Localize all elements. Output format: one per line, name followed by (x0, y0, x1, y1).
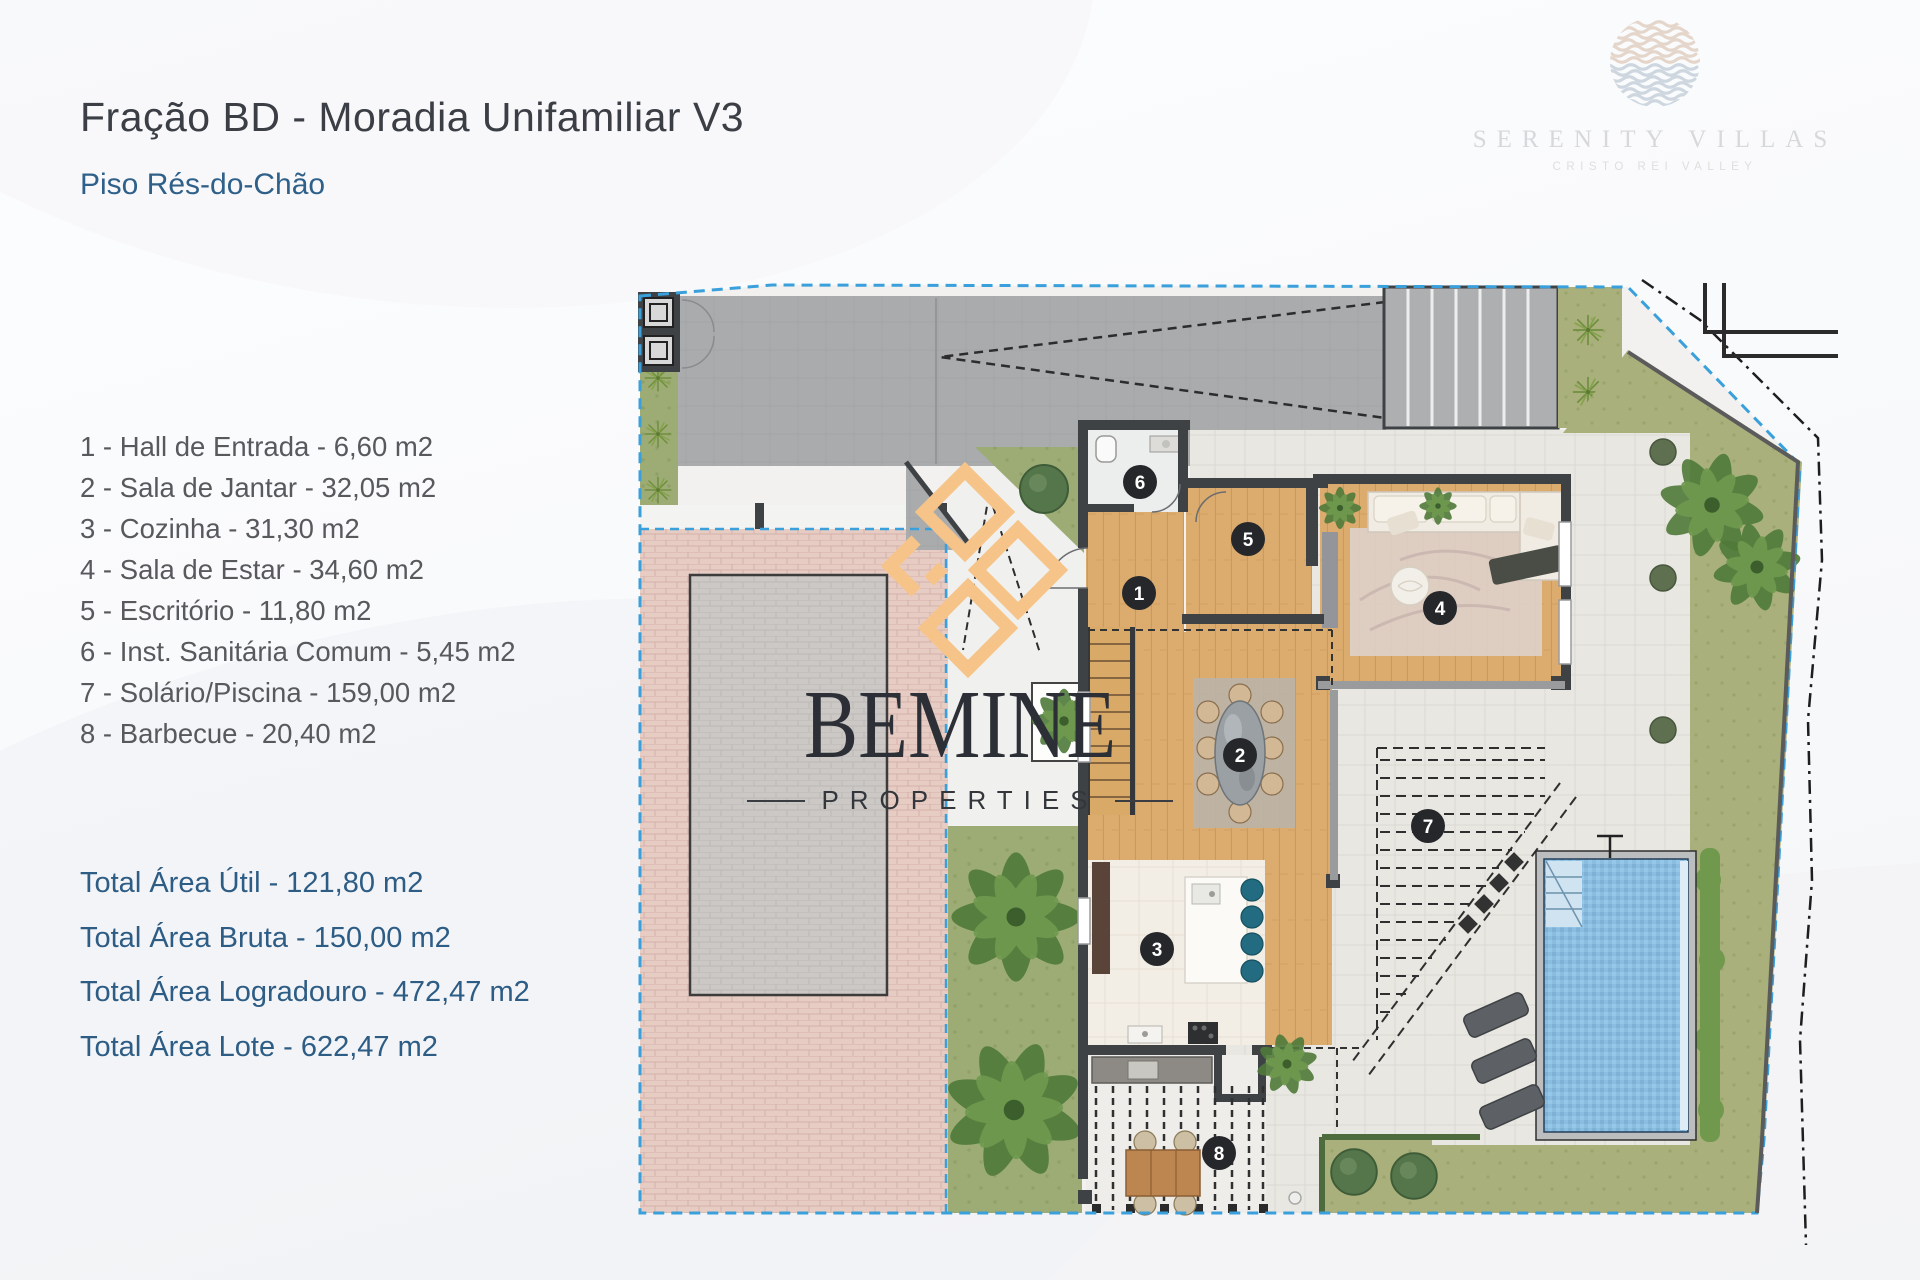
legend-room-item: 5 - Escritório - 11,80 m2 (80, 590, 516, 631)
legend-room-item: 2 - Sala de Jantar - 32,05 m2 (80, 467, 516, 508)
parking-slab (690, 575, 887, 995)
walkway-band (640, 505, 948, 529)
hall-floor (1086, 512, 1184, 632)
svg-text:6: 6 (1135, 473, 1146, 494)
legend-room-item: 8 - Barbecue - 20,40 m2 (80, 713, 516, 754)
developer-tagline: CRISTO REI VALLEY (1440, 161, 1870, 173)
svg-text:8: 8 (1214, 1144, 1225, 1165)
room-marker-7: 7 (1411, 809, 1445, 843)
floor-plan: 1 2 3 4 5 6 7 8 (598, 262, 1920, 1270)
svg-text:7: 7 (1423, 817, 1434, 838)
room-marker-2: 2 (1223, 738, 1257, 772)
legend-room-item: 3 - Cozinha - 31,30 m2 (80, 508, 516, 549)
total-item: Total Área Lote - 622,47 m2 (80, 1020, 530, 1075)
room-legend: 1 - Hall de Entrada - 6,60 m2 2 - Sala d… (80, 426, 516, 754)
bbq-table (1126, 1150, 1200, 1196)
wave-circle-icon (1607, 12, 1703, 112)
legend-room-item: 1 - Hall de Entrada - 6,60 m2 (80, 426, 516, 467)
svg-text:2: 2 (1235, 746, 1246, 767)
legend-room-item: 6 - Inst. Sanitária Comum - 5,45 m2 (80, 631, 516, 672)
pool (1536, 836, 1696, 1140)
total-item: Total Área Bruta - 150,00 m2 (80, 911, 530, 966)
total-item: Total Área Útil - 121,80 m2 (80, 856, 530, 911)
svg-text:3: 3 (1152, 940, 1163, 961)
legend-room-item: 7 - Solário/Piscina - 159,00 m2 (80, 672, 516, 713)
developer-name: SERENITY VILLAS (1440, 126, 1870, 154)
staircase (1086, 627, 1135, 815)
page-subtitle: Piso Rés-do-Chão (80, 168, 325, 202)
svg-text:4: 4 (1435, 599, 1446, 620)
svg-text:5: 5 (1243, 530, 1254, 551)
room-marker-8: 8 (1202, 1136, 1236, 1170)
room-marker-1: 1 (1122, 576, 1156, 610)
floorplan-sheet: Fração BD - Moradia Unifamiliar V3 Piso … (0, 0, 1920, 1280)
pool-steps (1546, 861, 1582, 927)
total-item: Total Área Logradouro - 472,47 m2 (80, 965, 530, 1020)
svg-text:1: 1 (1134, 584, 1145, 605)
developer-logo: SERENITY VILLAS CRISTO REI VALLEY (1440, 12, 1870, 173)
room-marker-3: 3 (1140, 932, 1174, 966)
legend-room-item: 4 - Sala de Estar - 34,60 m2 (80, 549, 516, 590)
page-title: Fração BD - Moradia Unifamiliar V3 (80, 94, 744, 141)
street-corner-marks (1705, 283, 1838, 356)
room-marker-4: 4 (1423, 591, 1457, 625)
room-marker-5: 5 (1231, 522, 1265, 556)
slatted-deck (1384, 287, 1558, 428)
area-totals: Total Área Útil - 121,80 m2 Total Área B… (80, 856, 530, 1074)
room-marker-6: 6 (1123, 465, 1157, 499)
